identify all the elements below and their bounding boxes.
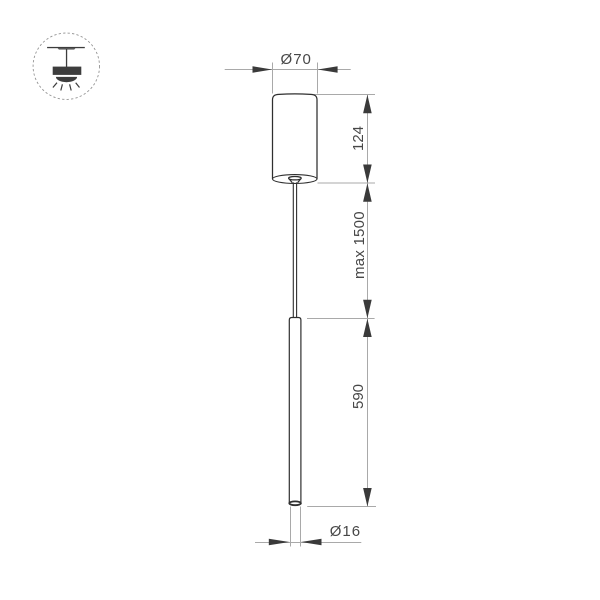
svg-text:124: 124 bbox=[350, 126, 367, 151]
svg-text:Ø70: Ø70 bbox=[281, 51, 311, 68]
svg-text:max 1500: max 1500 bbox=[351, 211, 368, 279]
svg-text:Ø16: Ø16 bbox=[330, 523, 360, 540]
svg-text:590: 590 bbox=[350, 384, 367, 409]
